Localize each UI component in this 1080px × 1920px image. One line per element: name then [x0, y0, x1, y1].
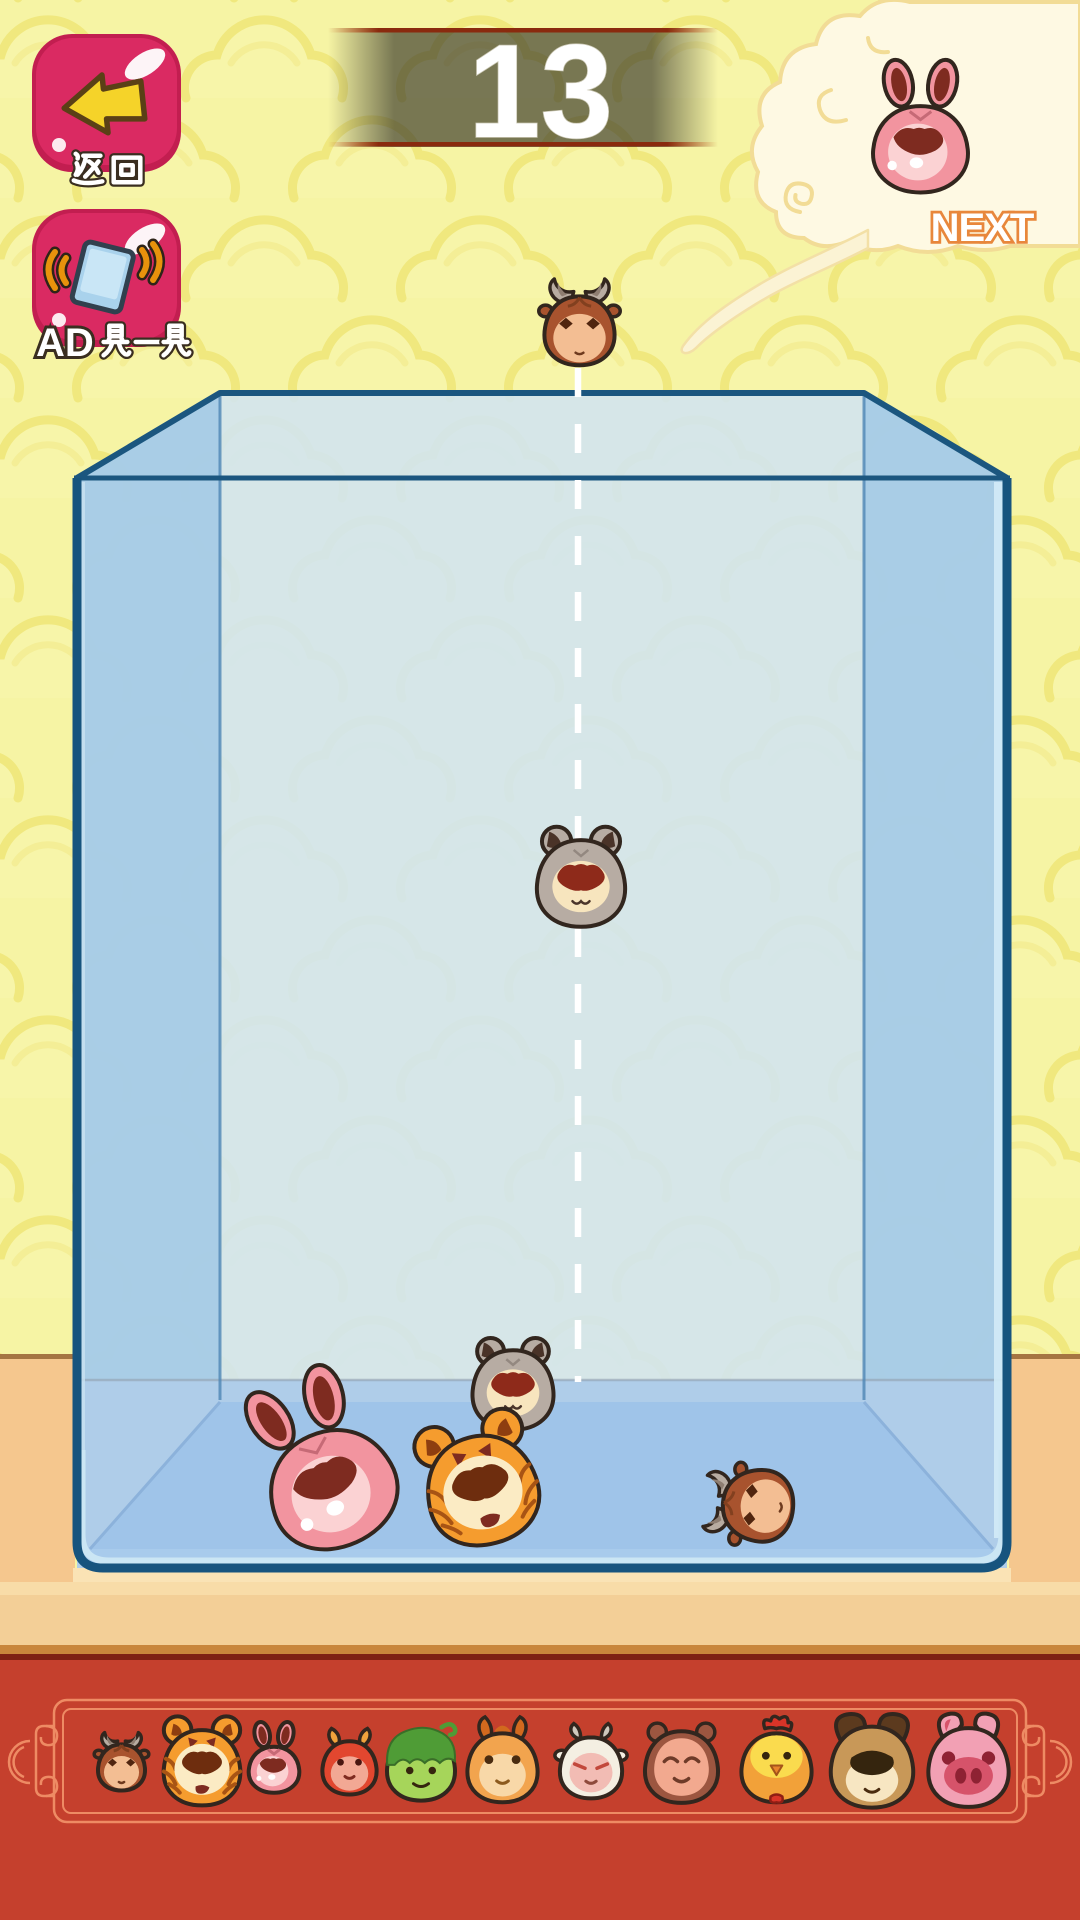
svg-text:13: 13 — [468, 18, 613, 166]
svg-text:AD: AD — [36, 321, 94, 365]
svg-text:NEXT: NEXT — [931, 206, 1034, 250]
